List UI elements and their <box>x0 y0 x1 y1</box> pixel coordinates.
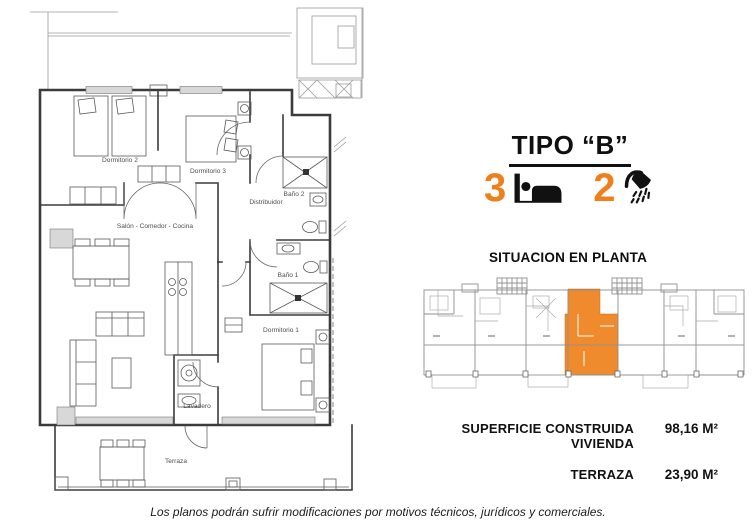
room-label-bano-2: Baño 2 <box>284 191 305 198</box>
disclaimer-note: Los planos podrán sufrir modificaciones … <box>0 505 756 519</box>
room-label-lavadero: Lavadero <box>183 403 211 410</box>
outer-walls <box>40 90 330 425</box>
bedrooms-count: 3 <box>484 168 506 208</box>
area-label: TERRAZA <box>418 467 634 482</box>
area-value: 23,90 M² <box>634 467 718 482</box>
highlighted-unit <box>565 289 618 375</box>
area-value: 98,16 M² <box>634 421 718 436</box>
area-label: SUPERFICIE CONSTRUIDA VIVIENDA <box>418 421 634 451</box>
room-label-distribuidor: Distribuidor <box>249 199 283 206</box>
situation-plan <box>418 276 750 400</box>
page-title: TIPO “B” <box>509 130 632 167</box>
furniture <box>55 96 352 490</box>
bed-icon <box>513 170 563 211</box>
shower-icon <box>622 165 658 210</box>
situation-plan-drawing <box>418 276 750 400</box>
area-row-terraza: TERRAZA 23,90 M² <box>418 467 718 482</box>
room-label-bano-1: Baño 1 <box>278 272 299 279</box>
features-row: 3 2 <box>484 164 664 211</box>
situation-heading: SITUACION EN PLANTA <box>418 250 718 265</box>
windows-and-pillars <box>50 85 315 425</box>
area-row-vivienda: SUPERFICIE CONSTRUIDA VIVIENDA 98,16 M² <box>418 421 718 451</box>
interior-walls <box>40 92 330 425</box>
room-label-dormitorio-2: Dormitorio 2 <box>102 157 138 164</box>
plan-sheet: { "title": { "text": "TIPO “B”" }, "feat… <box>0 0 756 528</box>
room-label-dormitorio-1: Dormitorio 1 <box>263 327 299 334</box>
room-label-terraza: Terraza <box>165 458 187 465</box>
floor-plan-drawing: Dormitorio 2 Dormitorio 3 Baño 2 Distrib… <box>0 0 380 520</box>
unit-type-title-block: TIPO “B” <box>470 130 670 167</box>
areas-table: SUPERFICIE CONSTRUIDA VIVIENDA 98,16 M² … <box>418 421 718 498</box>
bathrooms-count: 2 <box>593 168 615 208</box>
room-label-dormitorio-3: Dormitorio 3 <box>190 168 226 175</box>
room-label-salon: Salón - Comedor - Cocina <box>117 223 194 230</box>
floor-plan: Dormitorio 2 Dormitorio 3 Baño 2 Distrib… <box>0 0 380 520</box>
